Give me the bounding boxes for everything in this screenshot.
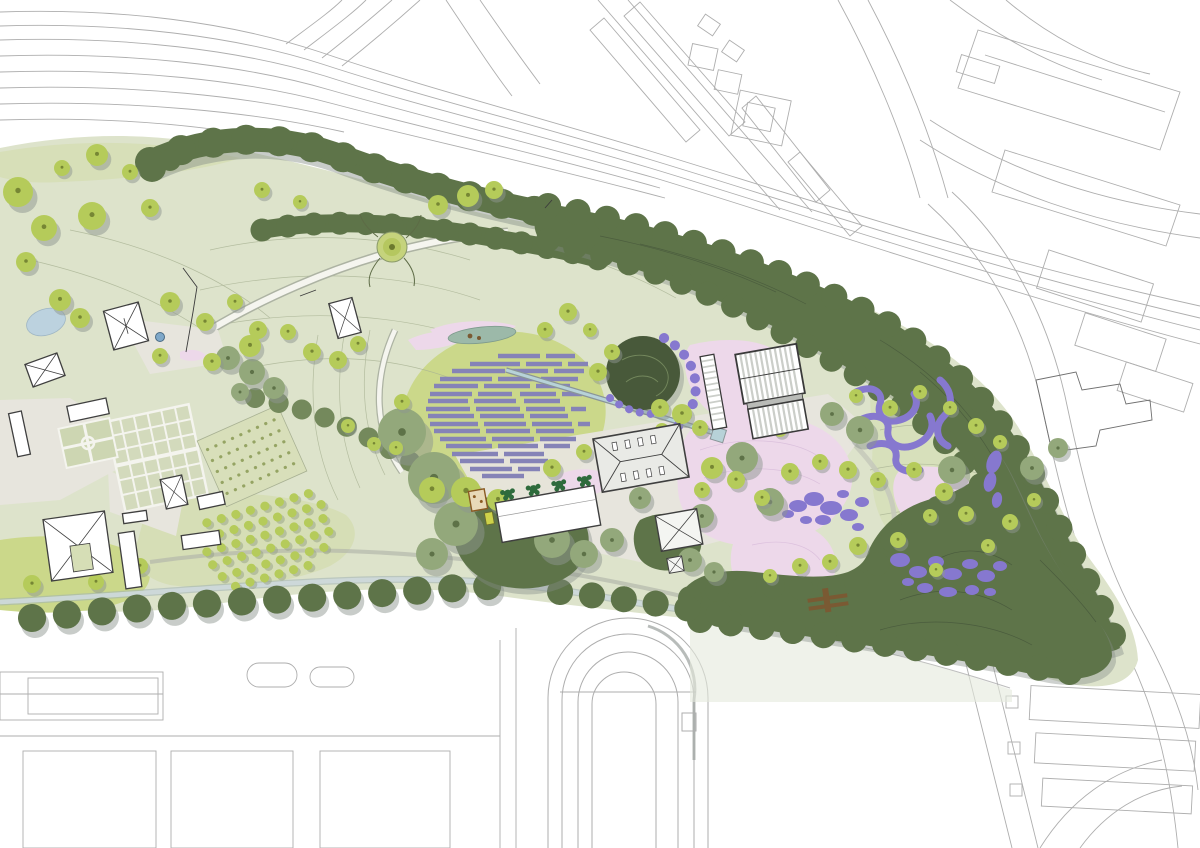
- masterplan-canvas: Landscape masterplan site plan: [0, 0, 1200, 848]
- formal-garden-grid: [106, 404, 207, 511]
- site-plan-drawing: Landscape masterplan site plan: [0, 0, 1200, 848]
- fountain: [156, 333, 165, 342]
